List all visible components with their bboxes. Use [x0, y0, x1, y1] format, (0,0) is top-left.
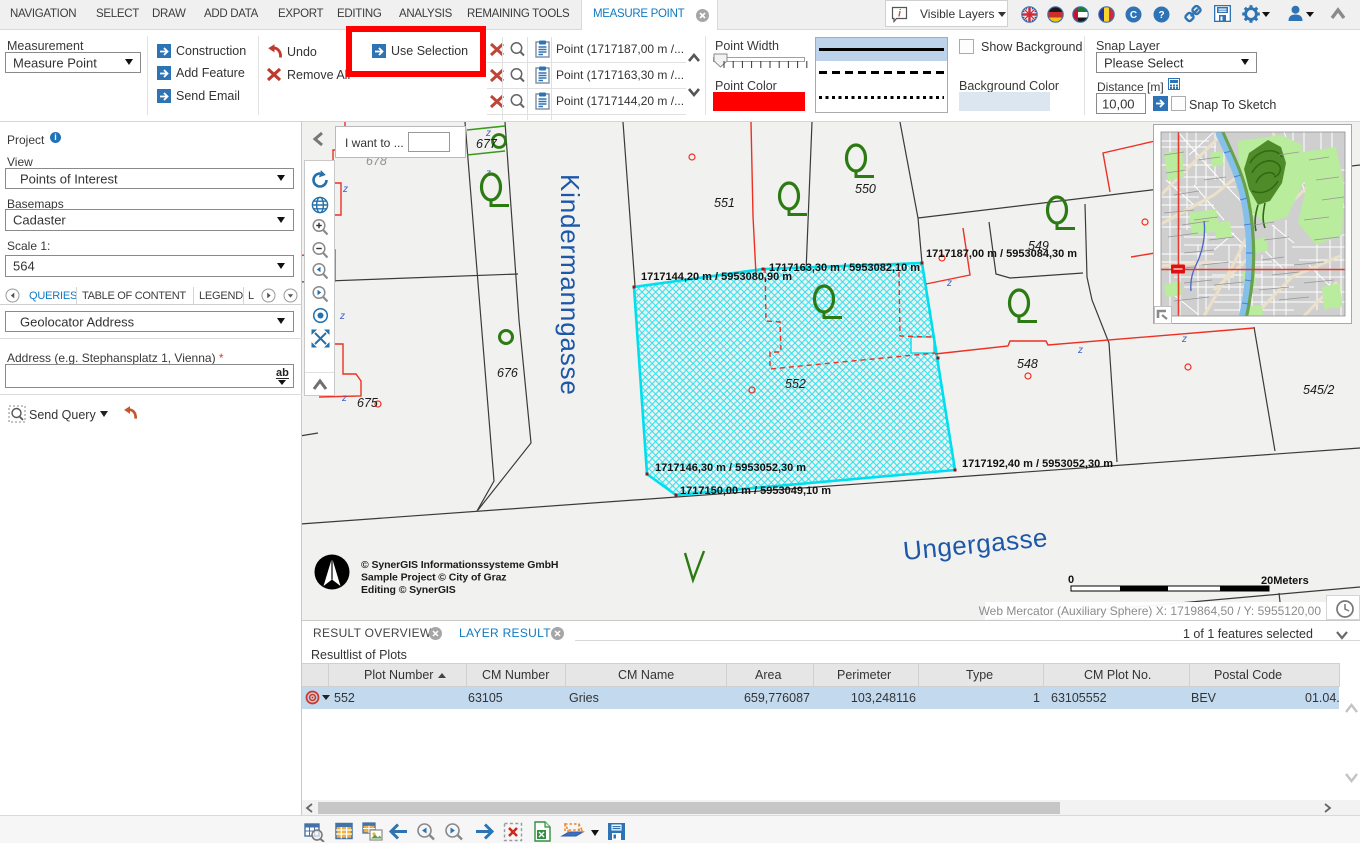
svg-text:z: z — [341, 393, 347, 404]
svg-text:Sample Project © City of Graz: Sample Project © City of Graz — [361, 572, 506, 584]
svg-text:z: z — [1181, 334, 1187, 345]
svg-text:1717187,00 m / 5953084,30 m: 1717187,00 m / 5953084,30 m — [926, 248, 1077, 260]
svg-text:1717163,30 m / 5953082,10 m: 1717163,30 m / 5953082,10 m — [769, 262, 920, 274]
svg-text:Kindermanngasse: Kindermanngasse — [555, 174, 585, 396]
svg-text:?: ? — [1158, 10, 1164, 21]
svg-text:550: 550 — [855, 182, 876, 196]
svg-text:1717146,30 m / 5953052,30 m: 1717146,30 m / 5953052,30 m — [655, 462, 806, 474]
svg-text:1717192,40 m / 5953052,30 m: 1717192,40 m / 5953052,30 m — [962, 458, 1113, 470]
svg-text:© SynerGIS Informationssysteme: © SynerGIS Informationssysteme GmbH — [361, 559, 558, 571]
svg-text:1717150,00 m / 5953049,10 m: 1717150,00 m / 5953049,10 m — [680, 485, 831, 497]
svg-text:z: z — [946, 278, 952, 289]
svg-text:552: 552 — [785, 377, 806, 391]
svg-text:676: 676 — [497, 366, 518, 380]
svg-text:675: 675 — [357, 396, 378, 410]
svg-text:548: 548 — [1017, 357, 1038, 371]
svg-text:Editing © SynerGIS: Editing © SynerGIS — [361, 584, 456, 596]
svg-text:Web Mercator (Auxiliary Sphere: Web Mercator (Auxiliary Sphere) X: 17198… — [979, 604, 1322, 618]
svg-text:Ungergasse: Ungergasse — [902, 522, 1049, 566]
svg-text:545/2: 545/2 — [1303, 383, 1334, 397]
svg-text:z: z — [342, 184, 348, 195]
svg-text:z: z — [339, 311, 345, 322]
svg-text:20Meters: 20Meters — [1261, 575, 1309, 587]
svg-text:677: 677 — [476, 137, 498, 151]
svg-text:z: z — [1077, 345, 1083, 356]
svg-text:i: i — [898, 9, 901, 20]
svg-text:551: 551 — [714, 196, 735, 210]
svg-text:C: C — [1130, 10, 1137, 21]
svg-text:0: 0 — [1068, 574, 1074, 586]
